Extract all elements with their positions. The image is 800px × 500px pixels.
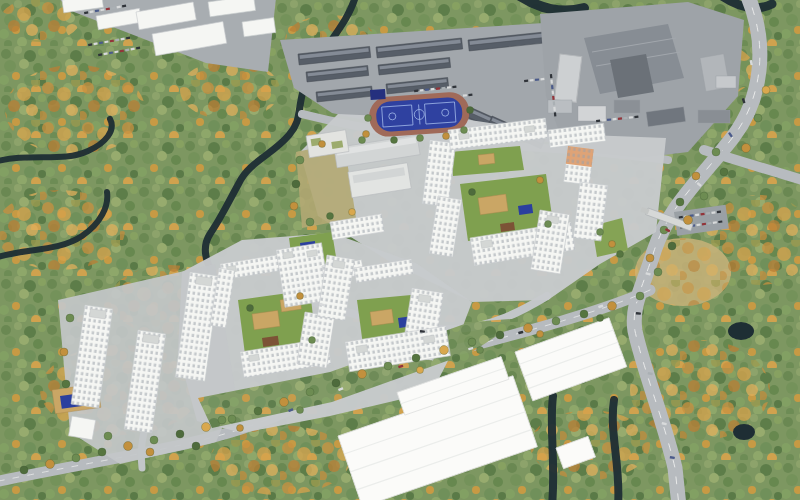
small-court bbox=[370, 89, 386, 100]
small-building bbox=[69, 416, 96, 440]
playground bbox=[478, 153, 495, 165]
apartment-building-orange bbox=[564, 146, 594, 185]
river-channel bbox=[552, 396, 554, 500]
playground bbox=[478, 194, 508, 215]
playground bbox=[370, 309, 394, 326]
playground bbox=[252, 310, 280, 329]
aerial-render bbox=[0, 0, 800, 500]
scene-canvas bbox=[0, 0, 800, 500]
